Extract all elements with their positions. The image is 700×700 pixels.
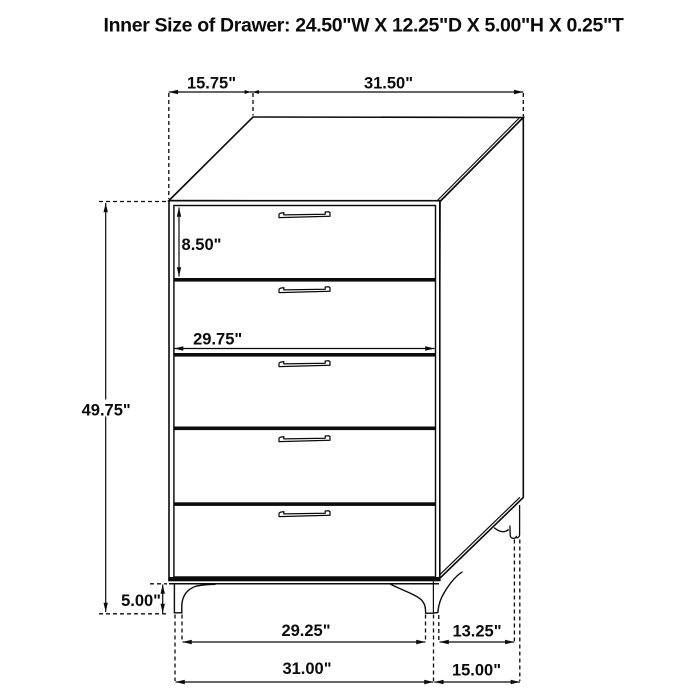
svg-text:5.00": 5.00" [121,592,161,610]
svg-text:31.50": 31.50" [364,74,413,92]
svg-text:29.75": 29.75" [193,331,242,349]
svg-text:Inner Size of Drawer: 24.50"W: Inner Size of Drawer: 24.50"W X 12.25"D … [104,15,624,37]
svg-text:31.00": 31.00" [282,660,331,678]
svg-text:13.25": 13.25" [452,623,501,641]
svg-text:29.25": 29.25" [281,622,330,640]
svg-text:15.00": 15.00" [452,662,501,680]
svg-text:15.75": 15.75" [187,74,236,92]
svg-text:8.50": 8.50" [182,236,222,254]
